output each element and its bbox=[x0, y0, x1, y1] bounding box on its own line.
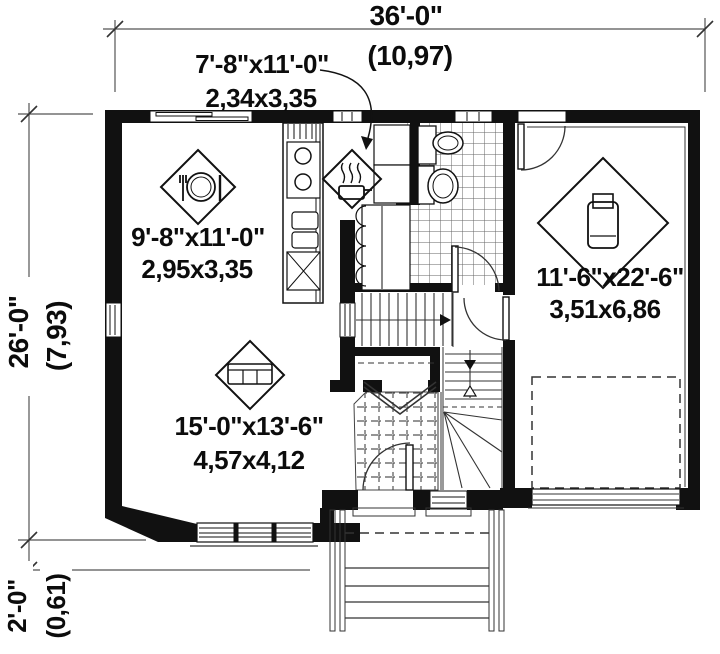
stair-winders bbox=[444, 412, 502, 488]
garage-dividing-wall-lower bbox=[503, 340, 515, 508]
living-bay-window bbox=[190, 523, 318, 546]
overall-width-meters: (10,97) bbox=[340, 40, 480, 72]
refrigerator bbox=[374, 125, 410, 165]
cooking-pot-icon bbox=[323, 150, 381, 208]
bathroom-window bbox=[455, 111, 492, 122]
left-chamfer-wall bbox=[105, 500, 197, 542]
floor-plan: 36'-0" (10,97) 26'-0" (7,93) 2'-0" (0,61… bbox=[0, 0, 720, 654]
garage-door-swing-zone bbox=[532, 377, 680, 488]
stair-down-arrow bbox=[464, 360, 476, 370]
garage-dividing-wall-upper bbox=[503, 123, 515, 295]
porch-rail-right bbox=[489, 510, 504, 631]
garage-door-jamb-left bbox=[500, 488, 532, 508]
bathroom-sink bbox=[433, 132, 463, 154]
dishwasher bbox=[287, 252, 320, 290]
front-wall-left bbox=[322, 490, 358, 510]
hall-railing-opening bbox=[340, 303, 355, 337]
closet-north-wall bbox=[353, 347, 440, 356]
dining-size-imperial: 9'-8"x11'-0" bbox=[118, 222, 278, 253]
toilet bbox=[418, 166, 458, 204]
left-wall-window bbox=[106, 303, 121, 337]
sink-basin bbox=[292, 232, 318, 248]
sofa-icon bbox=[216, 341, 284, 409]
garage-size-imperial: 11'-6"x22'-6" bbox=[525, 262, 695, 293]
porch-steps bbox=[345, 568, 489, 618]
garage-size-metric: 3,51x6,86 bbox=[520, 294, 690, 325]
entry-sidelight-window bbox=[430, 491, 467, 509]
closet-south-stub-left bbox=[330, 380, 355, 392]
upper-stair-flight bbox=[356, 292, 453, 347]
kitchen-size-imperial: 7'-8"x11'-0" bbox=[182, 49, 342, 80]
overall-depth-feet: 26'-0" bbox=[2, 277, 36, 387]
burner bbox=[295, 174, 311, 190]
garage-service-door bbox=[518, 111, 566, 170]
porch-depth-feet: 2'-0" bbox=[1, 561, 33, 651]
living-size-imperial: 15'-0"x13'-6" bbox=[164, 411, 334, 442]
front-wall-mid bbox=[413, 490, 430, 510]
lower-stair-flight bbox=[438, 347, 502, 490]
dining-table-icon bbox=[161, 150, 235, 224]
porch-depth-meters: (0,61) bbox=[40, 561, 72, 651]
burner bbox=[295, 148, 311, 164]
floor-plan-drawing bbox=[0, 0, 720, 654]
overall-width-feet: 36'-0" bbox=[336, 0, 476, 32]
pantry bbox=[356, 205, 410, 290]
dining-size-metric: 2,95x3,35 bbox=[117, 254, 277, 285]
tall-cabinet bbox=[374, 165, 410, 203]
closet-south-stub-mid bbox=[363, 380, 382, 392]
front-wall-right bbox=[467, 490, 503, 510]
overall-depth-meters: (7,93) bbox=[40, 281, 74, 391]
stair-up-arrow bbox=[464, 386, 476, 396]
steam bbox=[342, 163, 361, 183]
fork bbox=[180, 175, 186, 201]
kitchen-size-metric: 2,34x3,35 bbox=[181, 83, 341, 114]
living-size-metric: 4,57x4,12 bbox=[164, 445, 334, 476]
hall-west-wall-upper bbox=[340, 220, 355, 303]
stair-direction-arrow bbox=[440, 314, 451, 326]
hall-garage-door bbox=[464, 297, 509, 340]
garage-overhead-door bbox=[528, 489, 684, 508]
sink-basin bbox=[292, 212, 318, 229]
